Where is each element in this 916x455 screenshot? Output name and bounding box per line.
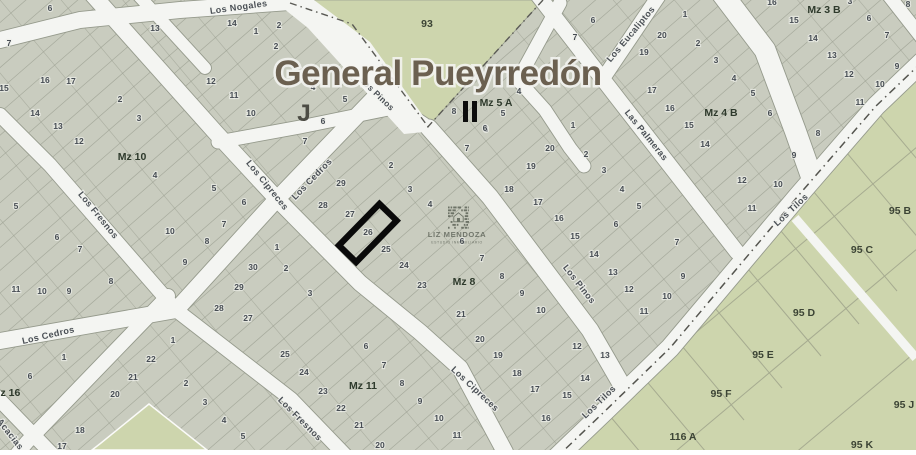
svg-text:7: 7 [465, 143, 470, 153]
svg-text:1: 1 [571, 120, 576, 130]
svg-text:13: 13 [608, 267, 618, 277]
svg-text:95 E: 95 E [752, 349, 774, 361]
svg-text:14: 14 [30, 108, 40, 118]
svg-text:116 A: 116 A [669, 431, 696, 443]
svg-text:13: 13 [827, 50, 837, 60]
svg-text:22: 22 [336, 403, 346, 413]
svg-text:20: 20 [110, 389, 120, 399]
svg-text:20: 20 [375, 440, 385, 450]
svg-text:3: 3 [137, 113, 142, 123]
svg-text:3: 3 [602, 165, 607, 175]
svg-text:9: 9 [183, 257, 188, 267]
svg-text:2: 2 [584, 149, 589, 159]
svg-text:20: 20 [475, 334, 485, 344]
svg-text:13: 13 [600, 350, 610, 360]
svg-text:12: 12 [74, 136, 84, 146]
svg-text:10: 10 [773, 179, 783, 189]
svg-text:LIZ MENDOZA: LIZ MENDOZA [428, 230, 486, 239]
svg-text:4: 4 [222, 415, 227, 425]
svg-text:4: 4 [428, 199, 433, 209]
svg-text:Mz 11: Mz 11 [349, 380, 377, 392]
svg-text:11: 11 [230, 90, 239, 100]
svg-text:5: 5 [14, 201, 19, 211]
svg-text:12: 12 [206, 76, 216, 86]
svg-text:1: 1 [683, 9, 688, 19]
svg-text:18: 18 [512, 368, 522, 378]
svg-text:7: 7 [303, 136, 308, 146]
svg-text:14: 14 [580, 373, 590, 383]
svg-text:10: 10 [875, 79, 885, 89]
svg-text:23: 23 [318, 386, 328, 396]
svg-text:13: 13 [150, 23, 160, 33]
svg-text:14: 14 [227, 18, 237, 28]
svg-text:95 K: 95 K [851, 439, 874, 450]
svg-text:5: 5 [212, 183, 217, 193]
svg-text:7: 7 [573, 32, 578, 42]
svg-text:11: 11 [748, 203, 757, 213]
svg-text:6: 6 [242, 197, 247, 207]
svg-text:7: 7 [480, 253, 485, 263]
svg-text:24: 24 [299, 367, 309, 377]
svg-text:5: 5 [501, 108, 506, 118]
svg-text:29: 29 [234, 282, 244, 292]
svg-text:9: 9 [520, 288, 525, 298]
svg-text:8: 8 [500, 271, 505, 281]
svg-text:6: 6 [768, 108, 773, 118]
svg-text:ESTUDIO INMOBILIARIO: ESTUDIO INMOBILIARIO [431, 241, 482, 245]
svg-text:9: 9 [792, 150, 797, 160]
svg-text:12: 12 [572, 341, 582, 351]
svg-text:28: 28 [318, 200, 328, 210]
svg-text:27: 27 [345, 209, 355, 219]
svg-text:8: 8 [452, 106, 457, 116]
svg-text:21: 21 [456, 309, 466, 319]
svg-text:8: 8 [400, 378, 405, 388]
svg-text:J: J [297, 100, 311, 127]
svg-text:6: 6 [591, 15, 596, 25]
svg-text:14: 14 [589, 249, 599, 259]
svg-text:14: 14 [808, 33, 818, 43]
svg-text:11: 11 [453, 430, 462, 440]
svg-text:3: 3 [203, 397, 208, 407]
svg-text:12: 12 [844, 69, 854, 79]
svg-text:24: 24 [399, 260, 409, 270]
svg-text:17: 17 [66, 76, 76, 86]
svg-text:16: 16 [541, 413, 551, 423]
svg-text:15: 15 [570, 231, 580, 241]
svg-text:6: 6 [321, 116, 326, 126]
svg-text:19: 19 [493, 350, 503, 360]
svg-text:15: 15 [0, 83, 9, 93]
svg-text:12: 12 [737, 175, 747, 185]
svg-text:2: 2 [277, 20, 282, 30]
svg-text:Mz 5 A: Mz 5 A [480, 97, 513, 109]
svg-text:28: 28 [214, 303, 224, 313]
svg-text:1: 1 [171, 335, 176, 345]
svg-text:6: 6 [614, 219, 619, 229]
svg-text:17: 17 [530, 384, 540, 394]
svg-text:21: 21 [354, 420, 364, 430]
svg-text:5: 5 [241, 431, 246, 441]
svg-text:1: 1 [62, 352, 67, 362]
svg-text:27: 27 [243, 313, 253, 323]
svg-text:9: 9 [418, 396, 423, 406]
svg-text:11: 11 [856, 97, 865, 107]
svg-text:21: 21 [128, 372, 138, 382]
svg-text:4: 4 [153, 170, 158, 180]
svg-text:6: 6 [55, 232, 60, 242]
svg-text:9: 9 [681, 271, 686, 281]
svg-text:15: 15 [562, 390, 572, 400]
svg-text:13: 13 [53, 121, 63, 131]
svg-text:General Pueyrredón: General Pueyrredón [274, 54, 601, 93]
svg-text:95 F: 95 F [710, 388, 732, 400]
svg-text:7: 7 [675, 237, 680, 247]
svg-text:9: 9 [67, 286, 72, 296]
svg-text:23: 23 [417, 280, 427, 290]
svg-text:1: 1 [275, 242, 280, 252]
svg-text:15: 15 [789, 15, 799, 25]
svg-text:2: 2 [389, 160, 394, 170]
svg-text:10: 10 [165, 226, 175, 236]
svg-text:17: 17 [533, 197, 543, 207]
svg-text:8: 8 [816, 128, 821, 138]
svg-text:95 J: 95 J [894, 399, 915, 411]
svg-text:4: 4 [620, 184, 625, 194]
svg-text:2: 2 [696, 38, 701, 48]
svg-text:Mz 16: Mz 16 [0, 387, 20, 399]
svg-text:7: 7 [7, 38, 12, 48]
svg-text:11: 11 [640, 306, 649, 316]
svg-text:5: 5 [751, 88, 756, 98]
svg-text:10: 10 [434, 413, 444, 423]
svg-text:2: 2 [118, 94, 123, 104]
svg-text:20: 20 [657, 30, 667, 40]
svg-text:3: 3 [408, 184, 413, 194]
svg-text:10: 10 [536, 305, 546, 315]
svg-text:Mz 3 B: Mz 3 B [807, 4, 841, 16]
svg-text:Mz 8: Mz 8 [453, 276, 476, 288]
svg-text:6: 6 [483, 123, 488, 133]
svg-text:3: 3 [714, 55, 719, 65]
svg-text:22: 22 [146, 354, 156, 364]
svg-text:20: 20 [545, 143, 555, 153]
svg-text:8: 8 [109, 276, 114, 286]
svg-text:6: 6 [867, 13, 872, 23]
svg-text:5: 5 [637, 201, 642, 211]
svg-text:7: 7 [382, 360, 387, 370]
svg-text:19: 19 [526, 161, 536, 171]
svg-text:8: 8 [205, 236, 210, 246]
svg-text:6: 6 [364, 341, 369, 351]
svg-text:10: 10 [246, 108, 256, 118]
svg-text:6: 6 [28, 371, 33, 381]
svg-text:26: 26 [363, 227, 373, 237]
svg-text:6: 6 [48, 3, 53, 13]
svg-text:15: 15 [684, 120, 694, 130]
svg-text:14: 14 [700, 139, 710, 149]
svg-text:1: 1 [254, 26, 259, 36]
svg-text:7: 7 [222, 219, 227, 229]
svg-text:7: 7 [885, 30, 890, 40]
svg-text:29: 29 [336, 178, 346, 188]
svg-text:16: 16 [554, 213, 564, 223]
svg-text:18: 18 [75, 425, 85, 435]
svg-text:2: 2 [274, 41, 279, 51]
svg-text:Mz 10: Mz 10 [118, 151, 147, 163]
svg-text:16: 16 [40, 75, 50, 85]
svg-text:9: 9 [895, 61, 900, 71]
svg-text:2: 2 [284, 263, 289, 273]
svg-text:2: 2 [184, 378, 189, 388]
svg-text:17: 17 [647, 85, 657, 95]
svg-text:5: 5 [343, 94, 348, 104]
svg-text:25: 25 [280, 349, 290, 359]
svg-text:95 C: 95 C [851, 244, 874, 256]
svg-text:93: 93 [421, 18, 433, 30]
svg-text:12: 12 [624, 284, 634, 294]
svg-text:3: 3 [848, 0, 853, 6]
svg-text:Mz 4 B: Mz 4 B [704, 107, 738, 119]
svg-text:16: 16 [767, 0, 777, 7]
svg-text:25: 25 [381, 244, 391, 254]
svg-text:95 B: 95 B [889, 205, 912, 217]
svg-text:30: 30 [248, 262, 258, 272]
svg-text:95 D: 95 D [793, 307, 816, 319]
svg-text:17: 17 [57, 441, 67, 450]
svg-text:7: 7 [78, 244, 83, 254]
svg-text:10: 10 [37, 286, 47, 296]
svg-text:11: 11 [12, 284, 21, 294]
svg-text:16: 16 [665, 103, 675, 113]
svg-text:19: 19 [639, 47, 649, 57]
svg-text:8: 8 [906, 0, 911, 9]
svg-text:18: 18 [504, 184, 514, 194]
svg-text:3: 3 [308, 288, 313, 298]
svg-text:10: 10 [662, 291, 672, 301]
svg-text:4: 4 [732, 73, 737, 83]
